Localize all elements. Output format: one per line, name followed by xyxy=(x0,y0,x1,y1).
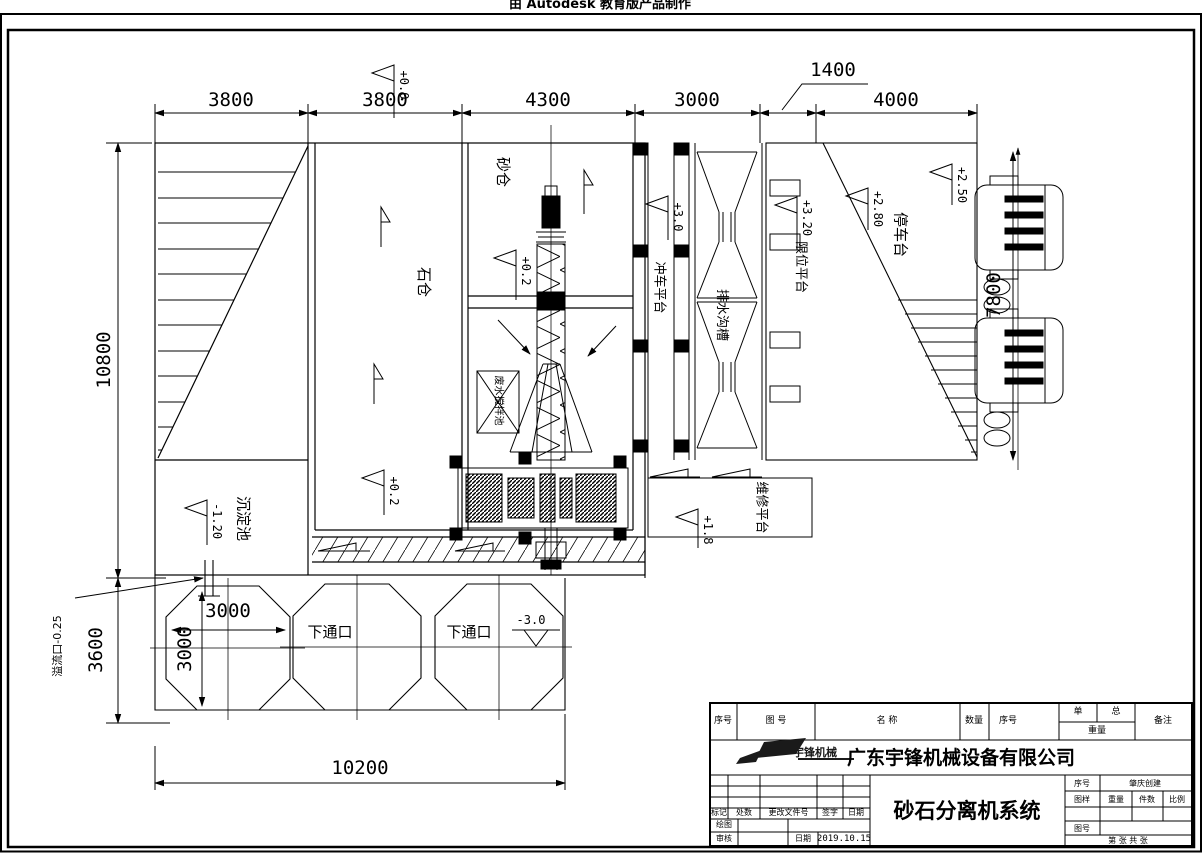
dim-top-5: 1400 xyxy=(798,61,868,79)
tb-right-qty: 件数 xyxy=(1132,794,1162,805)
label-maintenance-platform: 维修平台 xyxy=(755,480,768,536)
ramp-hatch xyxy=(312,537,645,562)
label-limit-platform: 限位平台 xyxy=(794,237,808,297)
tb-right-fig-no: 图号 xyxy=(1066,823,1098,834)
dim-top-6: 4000 xyxy=(861,91,931,109)
maintenance-platform xyxy=(648,469,812,537)
elevation-markers xyxy=(185,65,952,548)
elev-limit: +3.20 xyxy=(801,197,813,239)
label-sediment-pool: 沉淀池 xyxy=(236,494,251,544)
dim-left-lower: 3600 xyxy=(87,615,105,685)
drawing-title: 砂石分离机系统 xyxy=(872,798,1062,824)
tb-draw: 绘图 xyxy=(711,820,737,830)
tb-right-scale: 比例 xyxy=(1163,794,1191,805)
cad-drawing-page: 由 Autodesk 教育版产品制作 3800 3800 4300 3000 1… xyxy=(0,0,1202,853)
tb-right-seq-value: 肇庆创建 xyxy=(1105,778,1185,789)
dim-top-1: 3800 xyxy=(196,91,266,109)
tb-header-seq: 序号 xyxy=(710,715,736,727)
label-parking-platform: 停车台 xyxy=(893,210,908,260)
tb-check: 审核 xyxy=(711,834,737,844)
label-mix-pool: 废水搅拌池 xyxy=(493,373,504,429)
tb-sign: 签字 xyxy=(818,808,842,818)
tb-count: 处数 xyxy=(729,808,759,818)
elev-sand: +0.2 xyxy=(520,250,532,292)
tb-mark: 标记 xyxy=(710,808,728,818)
tb-header-total: 总 xyxy=(1106,706,1126,718)
tb-date2: 日期 xyxy=(790,834,816,844)
company-name: 广东宇锋机械设备有限公司 xyxy=(856,747,1066,769)
tb-right-seq: 序号 xyxy=(1066,778,1098,789)
dim-pit-horizontal: 3000 xyxy=(193,602,263,620)
tb-right-sheet: 第 张 共 张 xyxy=(1068,836,1188,846)
tb-header-unit: 单 xyxy=(1068,706,1088,718)
tb-date-value: 2019.10.15 xyxy=(819,834,869,844)
tb-date: 日期 xyxy=(843,808,869,818)
tb-change-doc: 更改文件号 xyxy=(761,808,816,818)
label-lower-port-1: 下通口 xyxy=(304,624,356,640)
dim-bottom: 10200 xyxy=(315,759,405,777)
label-overflow-port: 溢流口-0.25 xyxy=(51,613,63,679)
tb-header-remark: 备注 xyxy=(1148,715,1178,727)
dim-pit-vertical: 3000 xyxy=(176,614,194,684)
elev-park-outer: +2.50 xyxy=(956,164,968,206)
elev-maintenance: +1.8 xyxy=(702,509,714,551)
label-drain-channel: 排水沟槽 xyxy=(715,287,729,343)
elev-top: +0.0 xyxy=(398,64,410,106)
dim-right: 7800 xyxy=(985,260,1003,330)
tb-header-name: 名 称 xyxy=(857,715,917,727)
tb-header-weight: 重量 xyxy=(1082,725,1112,737)
label-wash-platform: 冲车平台 xyxy=(652,256,667,320)
dim-top-4: 3000 xyxy=(662,91,732,109)
elev-wash: +3.0 xyxy=(672,196,684,238)
tb-header-drawing-no: 图 号 xyxy=(751,715,801,727)
label-sand-bin: 砂仓 xyxy=(495,155,511,189)
dim-top-3: 4300 xyxy=(513,91,583,109)
elev-sediment: -1.20 xyxy=(211,500,223,542)
autodesk-education-stamp: 由 Autodesk 教育版产品制作 xyxy=(485,0,715,12)
tb-header-seq2: 序号 xyxy=(993,715,1023,727)
elev-pit: -3.0 xyxy=(511,614,551,626)
label-stone-bin: 石仓 xyxy=(416,265,432,299)
tb-right-weight: 重量 xyxy=(1101,794,1131,805)
elev-park-inner: +2.80 xyxy=(872,188,884,230)
tb-right-sample: 图样 xyxy=(1066,794,1098,805)
tb-header-qty: 数量 xyxy=(960,715,988,727)
company-logo-text: 宇锋机械 xyxy=(785,746,845,759)
elev-stone: +0.2 xyxy=(388,470,400,512)
dim-left-upper: 10800 xyxy=(95,315,113,405)
label-lower-port-2: 下通口 xyxy=(443,624,495,640)
